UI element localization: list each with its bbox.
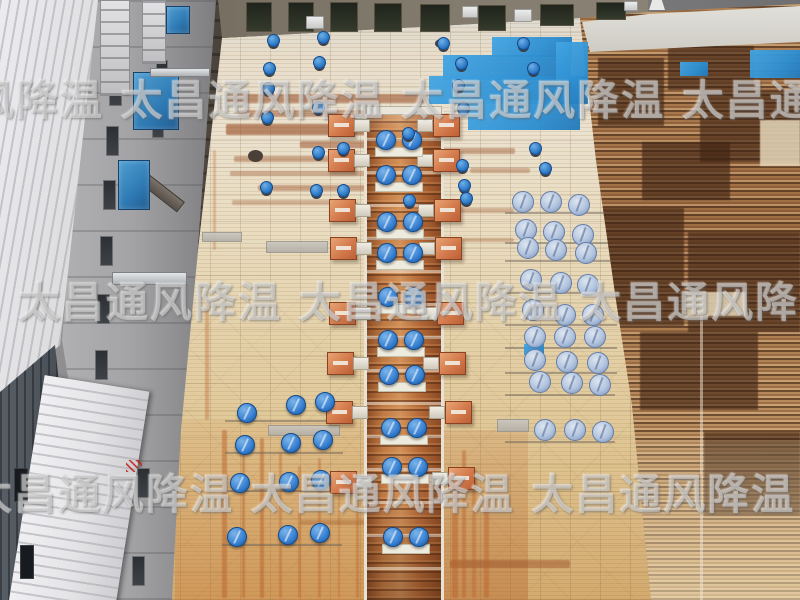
facade-window: [246, 2, 272, 32]
small-roof-fan: [539, 162, 552, 175]
ridge-exhaust-fan: [379, 365, 399, 385]
ac-unit: [514, 9, 532, 22]
ridge-exhaust-fan: [377, 243, 397, 263]
small-roof-fan: [455, 57, 468, 70]
blue-ventilation-machine: [118, 160, 150, 210]
rust-streak: [242, 446, 245, 598]
ac-unit: [462, 6, 478, 18]
facade-window: [330, 2, 358, 32]
facade-window: [478, 5, 506, 31]
walkway-patch: [497, 419, 529, 432]
wall-window: [100, 236, 113, 266]
small-roof-fan: [529, 142, 542, 155]
service-pipe: [505, 260, 617, 262]
unit-duct: [352, 406, 368, 419]
ridge-exhaust-fan: [383, 527, 403, 547]
roof-fan-pale-blue: [524, 326, 546, 348]
dark-roof-object: [248, 150, 263, 162]
ridge-exhaust-fan: [403, 212, 423, 232]
small-roof-fan: [310, 184, 323, 197]
unit-duct: [423, 357, 439, 370]
unit-duct: [353, 357, 369, 370]
rust-streak: [470, 168, 530, 173]
small-roof-fan: [260, 181, 273, 194]
small-roof-fan: [312, 146, 325, 159]
ridge-exhaust-fan: [403, 243, 423, 263]
rust-streak: [450, 560, 570, 568]
roof-fan-pale-blue: [517, 237, 539, 259]
small-roof-fan: [527, 62, 540, 75]
cooling-unit-box: [439, 352, 466, 375]
blue-paint-patch: [680, 62, 708, 76]
roof-fan-pale-blue: [587, 352, 609, 374]
ridge-exhaust-fan: [402, 165, 422, 185]
small-roof-fan: [456, 159, 469, 172]
roof-fan-pale-blue: [592, 421, 614, 443]
cooling-unit-box: [445, 401, 472, 424]
small-roof-fan: [263, 62, 276, 75]
ridge-exhaust-fan: [376, 130, 396, 150]
roof-fan-bright-blue: [286, 395, 306, 415]
ridge-exhaust-fan: [377, 212, 397, 232]
rust-streak: [230, 171, 380, 176]
dark-wall-window: [20, 545, 34, 579]
small-roof-fan: [313, 56, 326, 69]
ridge-exhaust-fan: [404, 330, 424, 350]
neighbor-roof-seam: [700, 300, 703, 600]
walkway-patch: [202, 232, 242, 242]
small-roof-fan: [337, 184, 350, 197]
wall-window: [95, 350, 108, 380]
roof-fan-pale-blue: [556, 351, 578, 373]
cooling-unit-box: [330, 237, 357, 260]
roof-fan-pale-blue: [512, 191, 534, 213]
light-panel: [760, 120, 800, 166]
roof-fan-pale-blue: [554, 326, 576, 348]
dark-rust-panel: [642, 142, 730, 200]
dark-rust-panel: [640, 332, 758, 410]
roof-fan-bright-blue: [313, 430, 333, 450]
ac-unit: [624, 1, 638, 11]
facade-window: [596, 2, 626, 20]
watermark-row-2: 太昌通风降温 太昌通风降温 太昌通风降温 太昌通风降温: [18, 282, 800, 324]
small-roof-fan: [458, 179, 471, 192]
roof-fan-pale-blue: [561, 372, 583, 394]
ridge-exhaust-fan: [407, 418, 427, 438]
cooling-unit-box: [329, 199, 356, 222]
blue-ventilation-machine: [166, 6, 190, 34]
roof-fan-pale-blue: [584, 326, 606, 348]
facade-window: [540, 4, 574, 26]
unit-duct: [354, 154, 370, 167]
roof-fan-bright-blue: [310, 523, 330, 543]
roof-fan-pale-blue: [564, 419, 586, 441]
small-roof-fan: [267, 34, 280, 47]
cooling-unit-box: [435, 237, 462, 260]
roof-fan-pale-blue: [575, 242, 597, 264]
small-roof-fan: [403, 194, 416, 207]
ac-unit: [306, 16, 324, 29]
roof-fan-pale-blue: [524, 349, 546, 371]
small-roof-fan: [317, 31, 330, 44]
roof-fan-bright-blue: [315, 392, 335, 412]
wall-window: [103, 180, 116, 210]
ridge-exhaust-fan: [381, 418, 401, 438]
small-roof-fan: [402, 127, 415, 140]
roof-fan-pale-blue: [568, 194, 590, 216]
blue-paint-patch: [750, 50, 800, 78]
wall-window: [132, 556, 145, 586]
stacked-crates: [142, 0, 166, 64]
roof-fan-pale-blue: [534, 419, 556, 441]
unit-duct: [355, 204, 371, 217]
ridge-exhaust-fan: [405, 365, 425, 385]
small-roof-fan: [337, 142, 350, 155]
unit-duct: [429, 406, 445, 419]
roof-fan-pale-blue: [545, 239, 567, 261]
ridge-exhaust-fan: [378, 330, 398, 350]
roof-fan-bright-blue: [281, 433, 301, 453]
cooling-unit-box: [327, 352, 354, 375]
roof-fan-pale-blue: [540, 191, 562, 213]
aerial-photo-scene: 太昌通风降温 太昌通风降温 太昌通风降温 太昌通风降温 太昌通风降温 太昌通风降…: [0, 0, 800, 600]
facade-window: [420, 4, 450, 32]
facade-window: [374, 3, 402, 32]
small-roof-fan: [437, 37, 450, 50]
walkway-patch: [266, 241, 328, 253]
roof-fan-pale-blue: [529, 371, 551, 393]
roof-fan-pale-blue: [589, 374, 611, 396]
ridge-exhaust-fan: [376, 165, 396, 185]
roof-fan-bright-blue: [237, 403, 257, 423]
wall-window: [106, 126, 119, 156]
watermark-row-3: 太昌通风降温 太昌通风降温 太昌通风降温 太昌通风降温: [0, 474, 800, 516]
small-roof-fan: [517, 37, 530, 50]
ridge-exhaust-fan: [409, 527, 429, 547]
roof-fan-bright-blue: [278, 525, 298, 545]
watermark-row-1: 太昌通风降温 太昌通风降温 太昌通风降温 太昌通风降温: [0, 80, 800, 122]
roof-fan-bright-blue: [227, 527, 247, 547]
roof-fan-bright-blue: [235, 435, 255, 455]
cooling-unit-box: [434, 199, 461, 222]
small-roof-fan: [460, 192, 473, 205]
unit-duct: [356, 242, 372, 255]
